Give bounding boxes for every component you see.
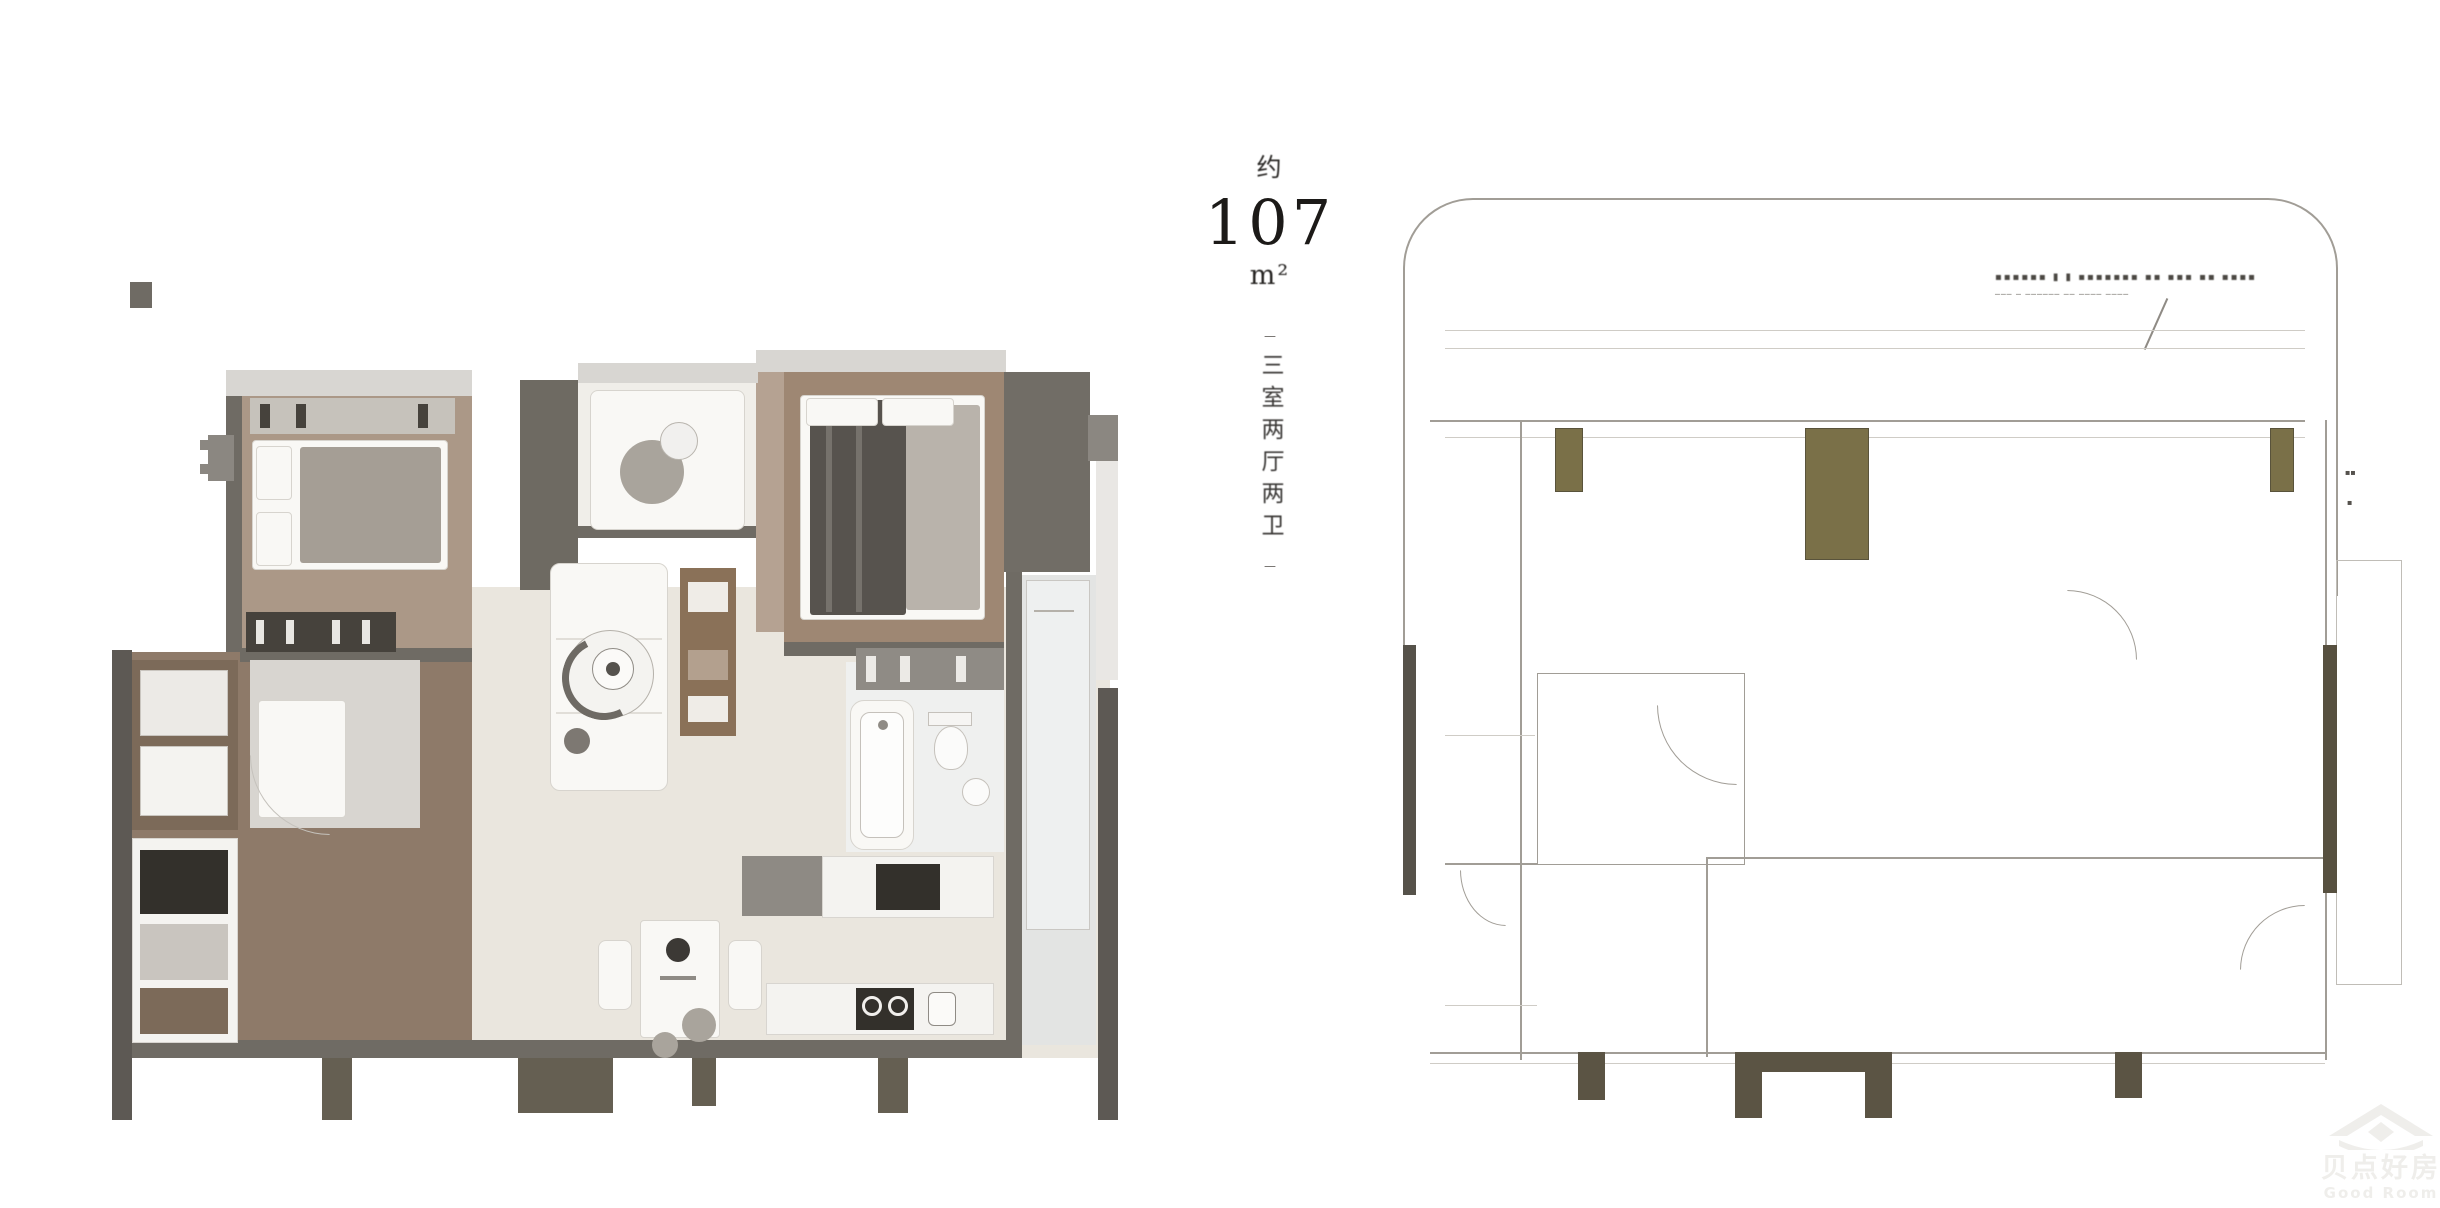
right-extension-outline [2336, 560, 2402, 985]
wall-horizontal-left [1445, 863, 1537, 865]
wall-shelf-line [1445, 735, 1535, 736]
bottom-stub3 [692, 1058, 716, 1106]
wall-horizontal-mid [1706, 857, 2326, 859]
tick-right-upper: ▪▪ [2345, 468, 2356, 477]
bottom-stub4 [878, 1058, 908, 1113]
shelf-item3 [956, 656, 966, 682]
side-fin-right [1096, 440, 1118, 680]
area-unit: m² [1185, 260, 1355, 291]
toilet [934, 726, 968, 770]
inner-wall-top [1430, 420, 2305, 422]
area-text-block: 约 107 m² — 三室两厅两卫 — [1185, 148, 1355, 573]
right-corridor-glass-panel [1026, 580, 1090, 930]
bookshelf-book2 [286, 620, 294, 644]
label-tick-bottom: — [1185, 559, 1355, 573]
column-left [112, 650, 132, 1120]
tv-console-shelf1 [688, 582, 728, 612]
balcony-line2 [1445, 348, 2305, 349]
side-bar-left [1403, 645, 1416, 895]
tick-right-lower: ▪ [2347, 498, 2352, 507]
rp-stub2 [2115, 1052, 2142, 1098]
kitchen-appliance-white2 [140, 746, 228, 816]
area-value: 107 [1185, 192, 1355, 254]
window-frame-top-right [756, 350, 1006, 372]
bed1-pillow1 [256, 446, 292, 500]
column-olive-center [1805, 428, 1869, 560]
wall-right-main [1006, 572, 1022, 1058]
column-right [1098, 688, 1118, 1120]
watermark: 贝点好房 Good Room [2316, 1098, 2440, 1202]
bed1-duvet [300, 447, 441, 563]
bed2-blanket [906, 405, 980, 610]
bottom-stub2 [518, 1058, 613, 1113]
bed2-duvet-fold2 [856, 402, 862, 612]
dining-kettle [666, 938, 690, 962]
shelf-item2 [900, 656, 910, 682]
left-floor-plan [100, 360, 1180, 1150]
bed2-pillow1 [806, 398, 878, 426]
kettle-lid [606, 662, 620, 676]
door-arc-left [1460, 870, 1506, 926]
right-floor-plan: ▪▪▪▪▪▪ ▮ ▮ ▪▪▪▪▪▪▪ ▪▪ ▪▪▪ ▪▪ ▪▪▪▪ ─── ─ … [1395, 190, 2405, 1150]
beanbag-pillow [660, 422, 698, 460]
tv-console-shelf2 [688, 650, 728, 680]
bookshelf-book4 [362, 620, 370, 644]
rp-stub1 [1578, 1052, 1605, 1100]
oven [140, 850, 228, 914]
bathtub-drain [878, 720, 888, 730]
rp-bracket-leg-left [1735, 1072, 1762, 1118]
rp-bracket-top [1735, 1052, 1892, 1072]
ac-bracket-left-tooth2 [200, 464, 208, 474]
watermark-text-en: Good Room [2316, 1184, 2440, 1202]
shelf-bedroom2 [856, 648, 1004, 690]
wardrobe-item1 [260, 404, 270, 428]
watermark-house-icon [2321, 1098, 2440, 1150]
kitchen2-cabinet [742, 856, 822, 916]
toilet-tank [928, 712, 972, 726]
wall-vertical-mid [1706, 857, 1708, 1057]
tv-console-shelf3 [688, 696, 728, 722]
stool1 [682, 1008, 716, 1042]
label-tick-top: — [1185, 329, 1355, 343]
bookshelf-book1 [256, 620, 264, 644]
bookshelf-book3 [332, 620, 340, 644]
glass-panel-handle [1034, 610, 1074, 612]
kitchen2-sink [928, 992, 956, 1026]
kitchen-drawer [140, 924, 228, 980]
dark-block-right [1004, 372, 1090, 572]
stool2 [652, 1032, 678, 1058]
rp-bracket-leg-right [1865, 1072, 1892, 1118]
floorplan-page: { "area_label": { "qualifier": "约", "val… [0, 0, 2440, 1208]
kitchen-lower-cabinet [140, 988, 228, 1034]
range-hood [876, 864, 940, 910]
window-frame-top-left [226, 370, 472, 396]
bathtub-inner [860, 712, 904, 838]
closet-block [520, 380, 578, 590]
outer-boundary-right [2336, 336, 2338, 596]
burner2 [888, 996, 908, 1016]
bed2-duvet-fold1 [826, 402, 832, 612]
area-qualifier: 约 [1185, 148, 1355, 184]
wall-horizontal-small-room [1445, 1005, 1537, 1006]
door-arc-hall [2067, 590, 2137, 660]
layout-type-label: 三室两厅两卫 [1253, 353, 1287, 545]
bottom-stub1 [322, 1058, 352, 1120]
side-bar-right [2323, 645, 2337, 893]
window-frame-balcony [578, 363, 758, 383]
hallway-strip [756, 372, 784, 632]
bed2-pillow2 [882, 398, 954, 426]
dining-chair-left [598, 940, 632, 1010]
column-olive-right [2270, 428, 2294, 492]
bed1-pillow2 [256, 512, 292, 566]
bookshelf-bedroom1 [246, 612, 396, 652]
kitchen-appliance-white1 [140, 670, 228, 736]
dining-chair-right [728, 940, 762, 1010]
balcony-line1 [1445, 330, 2305, 331]
wall-vertical-left [1520, 420, 1522, 1060]
ac-unit-top-left [130, 282, 152, 308]
wardrobe-item2 [296, 404, 306, 428]
wall-bottom [132, 1040, 1016, 1058]
dining-tray [660, 976, 696, 980]
floor-saucer [564, 728, 590, 754]
door-arc-room2 [2240, 905, 2305, 970]
ac-bracket-right [1088, 415, 1118, 461]
ac-bracket-left-tooth1 [200, 440, 208, 450]
watermark-text-zh: 贝点好房 [2316, 1154, 2440, 1184]
wardrobe-item3 [418, 404, 428, 428]
burner1 [862, 996, 882, 1016]
column-olive-left [1555, 428, 1583, 492]
shelf-item1 [866, 656, 876, 682]
bathroom-sink [962, 778, 990, 806]
outer-boundary-top [1403, 198, 2338, 338]
ac-bracket-left [208, 435, 234, 481]
